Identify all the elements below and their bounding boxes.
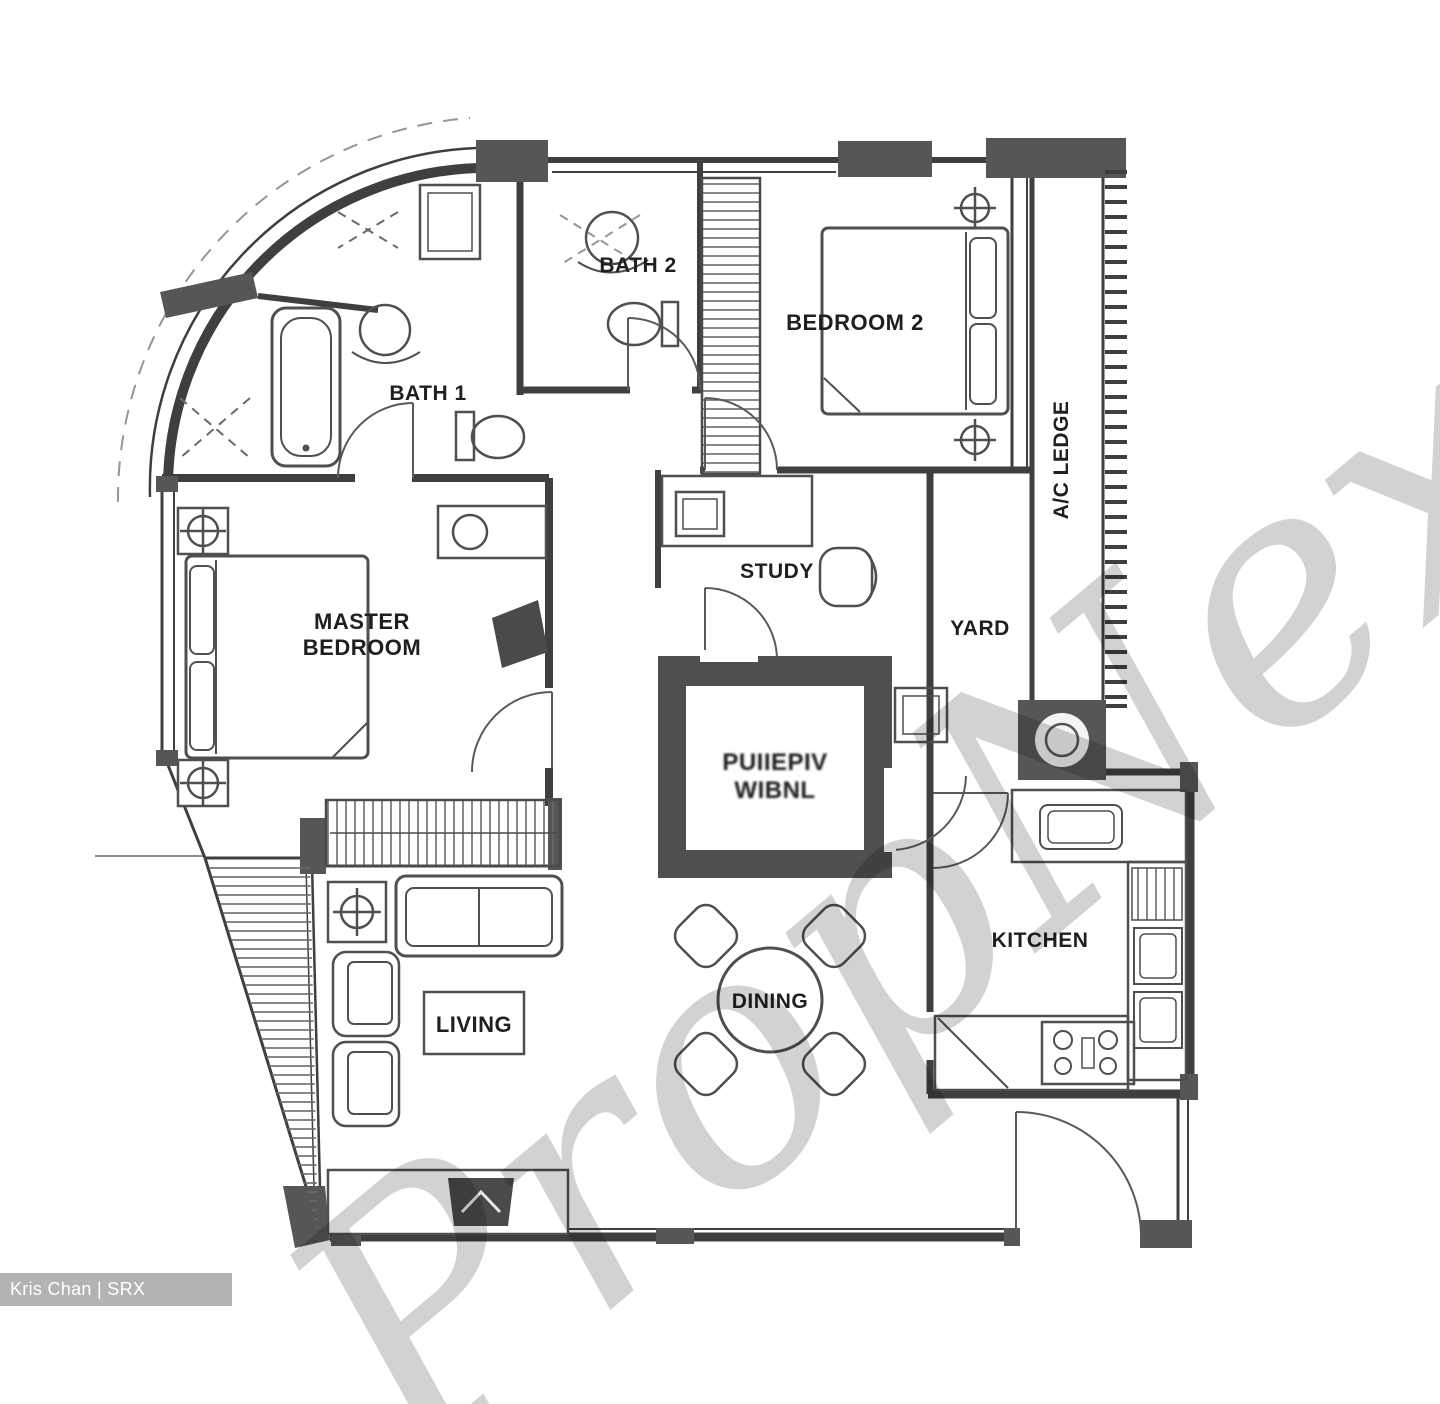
pillow <box>190 566 214 654</box>
room-label-bath2: BATH 2 <box>599 254 676 277</box>
pillow <box>970 324 996 404</box>
master-door-arc <box>472 692 552 772</box>
toilet-tank <box>662 302 678 346</box>
toilet-icon <box>608 303 660 345</box>
corner-tv <box>492 600 548 668</box>
entrance-door-arc <box>1016 1112 1141 1237</box>
caption-bar: Kris Chan | SRX PROPERTY <box>0 1273 232 1306</box>
bedroom2-closet <box>702 178 760 474</box>
room-label-bedroom2: BEDROOM 2 <box>786 310 924 335</box>
pillow <box>970 238 996 318</box>
chair <box>820 548 872 606</box>
room-label-master-1: MASTER <box>314 609 410 634</box>
floor-plan-canvas: MASTER BEDROOM BATH 1 BATH 2 BEDROOM 2 S… <box>0 0 1440 1404</box>
room-label-bath1: BATH 1 <box>389 382 466 405</box>
bath1-door-arc <box>338 403 413 478</box>
bath2-door-arc <box>628 318 700 390</box>
ceiling-fan-icon <box>954 419 996 461</box>
pillow <box>190 662 214 750</box>
ceiling-fan-icon <box>954 187 996 229</box>
room-label-ac-ledge: A/C LEDGE <box>1050 401 1073 520</box>
room-label-master-2: BEDROOM <box>303 635 421 660</box>
sink-icon <box>360 305 410 355</box>
room-label-study: STUDY <box>740 560 814 583</box>
toilet-icon <box>472 416 524 458</box>
study-door-arc <box>705 588 777 660</box>
study-furniture <box>662 476 876 606</box>
floorplan-image: MASTER BEDROOM BATH 1 BATH 2 BEDROOM 2 S… <box>0 0 1440 1404</box>
shower-stall <box>420 185 480 259</box>
